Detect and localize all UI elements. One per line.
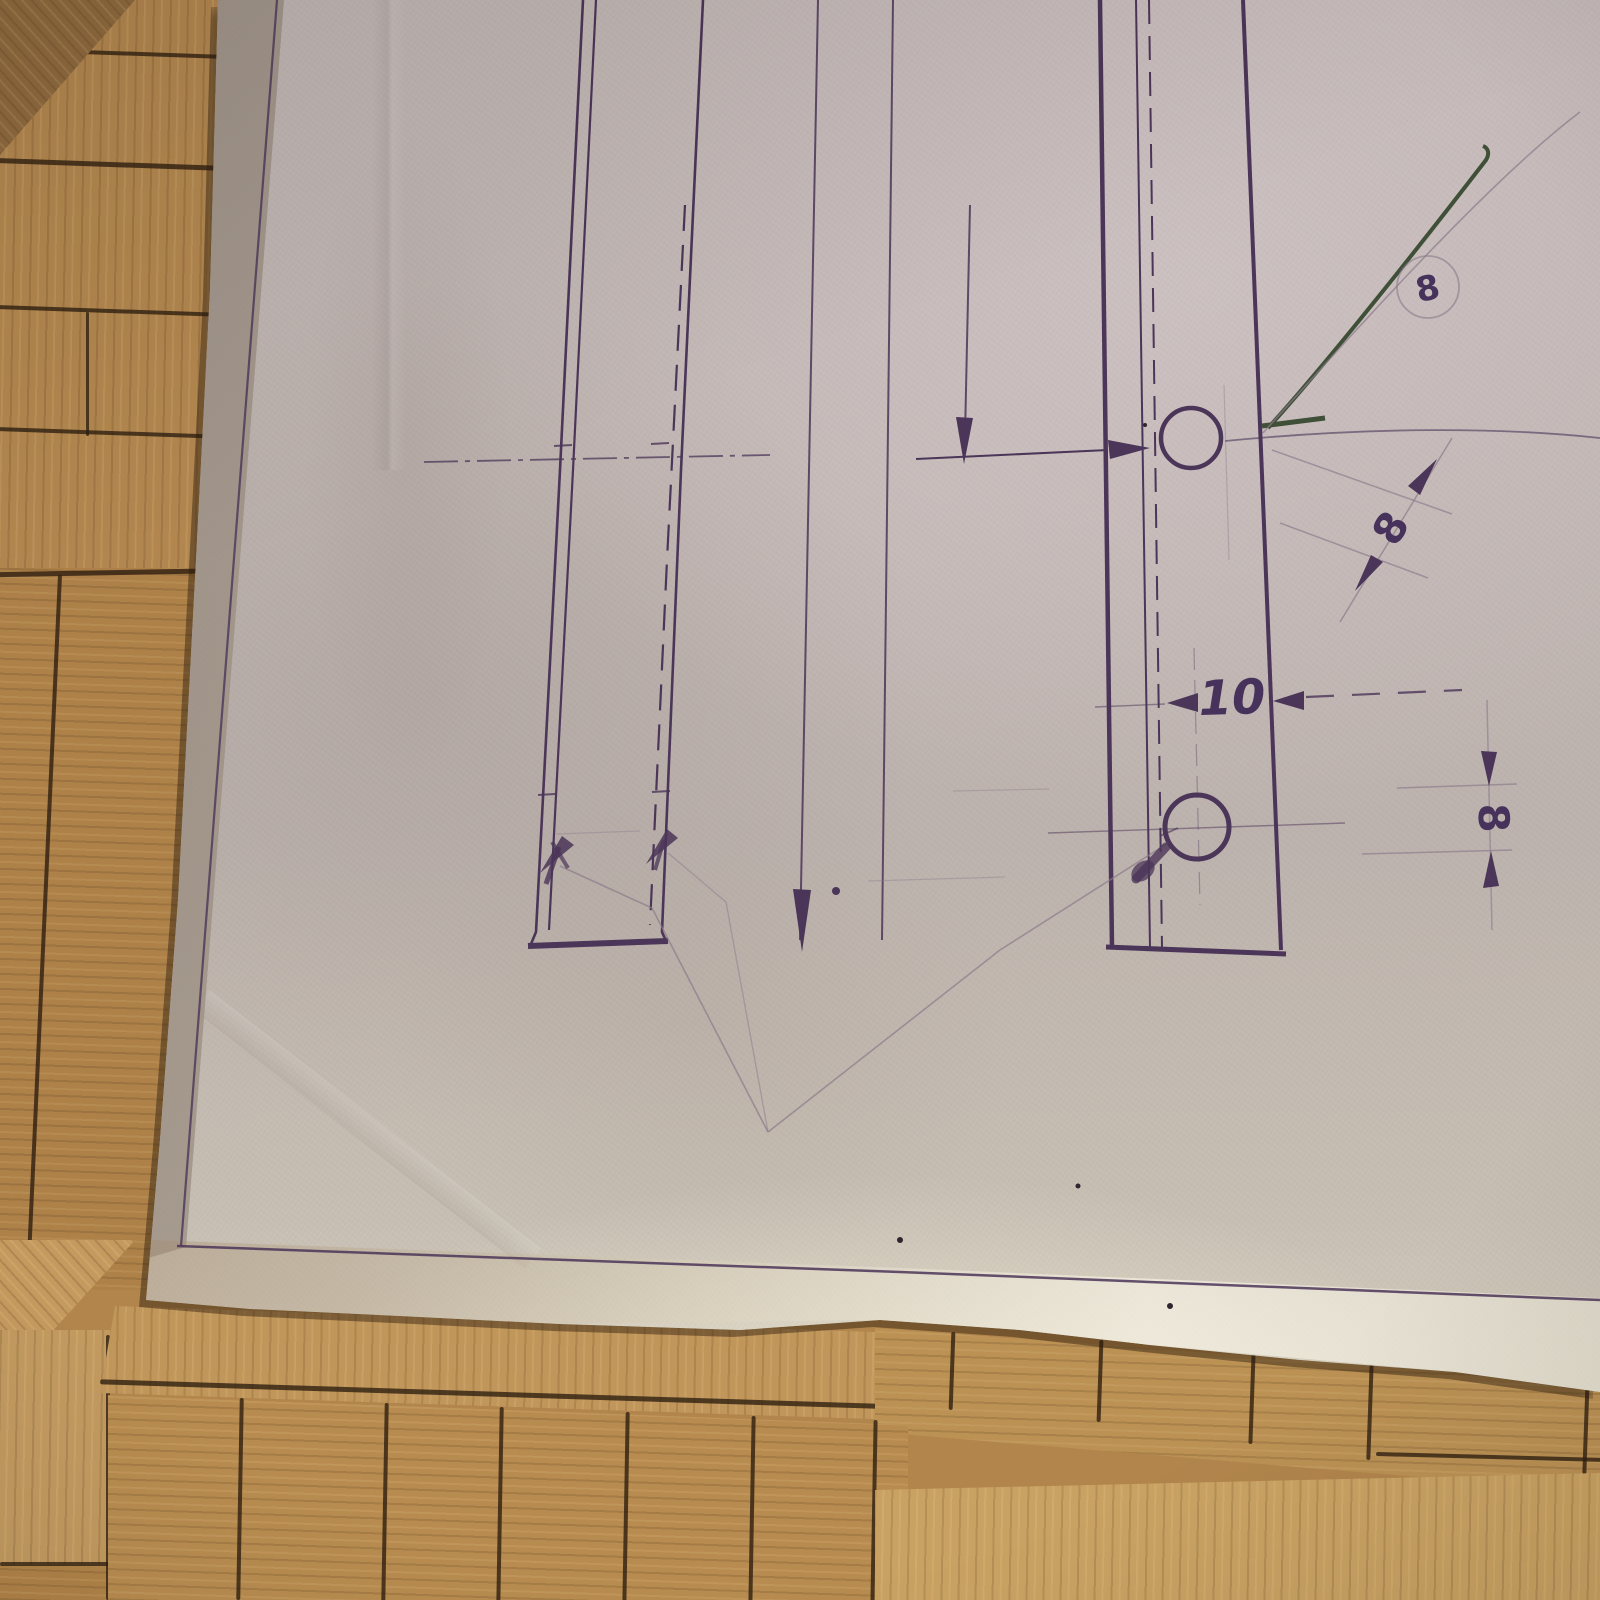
green-leader: 8 — [1262, 112, 1580, 433]
photo-scene: 8 8 10 8 — [0, 0, 1600, 1600]
construction-lines — [556, 789, 1168, 1132]
arrow-down-icon — [793, 889, 811, 952]
arrow-left-icon — [1273, 691, 1304, 710]
balloon-label: 8 — [1412, 267, 1443, 311]
arrow-left-icon — [1167, 693, 1198, 712]
dim-diagonal-label: 8 — [1362, 503, 1419, 554]
drawing-frame — [177, 0, 1600, 1300]
hole-circle-upper — [1161, 408, 1221, 468]
dim-width-label: 10 — [1198, 669, 1267, 727]
ink-dot — [832, 887, 840, 895]
centerlines — [424, 385, 1600, 905]
arrow-up-right-icon — [1408, 459, 1437, 495]
middle-lines — [793, 0, 973, 952]
technical-drawing: 8 8 10 8 — [0, 0, 1600, 1600]
arrow-up-icon — [1483, 851, 1499, 888]
arrow-down-icon — [1481, 751, 1497, 786]
left-channel-section — [528, 0, 703, 946]
smudge-arrows — [540, 828, 1178, 886]
dimension-width-10: 10 — [1095, 669, 1462, 727]
dimension-right-8: 8 — [1362, 700, 1518, 930]
right-channel-section — [1100, 0, 1286, 954]
dim-right-label: 8 — [1469, 802, 1519, 833]
arrow-down-left-icon — [1355, 555, 1383, 591]
dimension-diagonal-8: 8 — [1272, 438, 1452, 622]
